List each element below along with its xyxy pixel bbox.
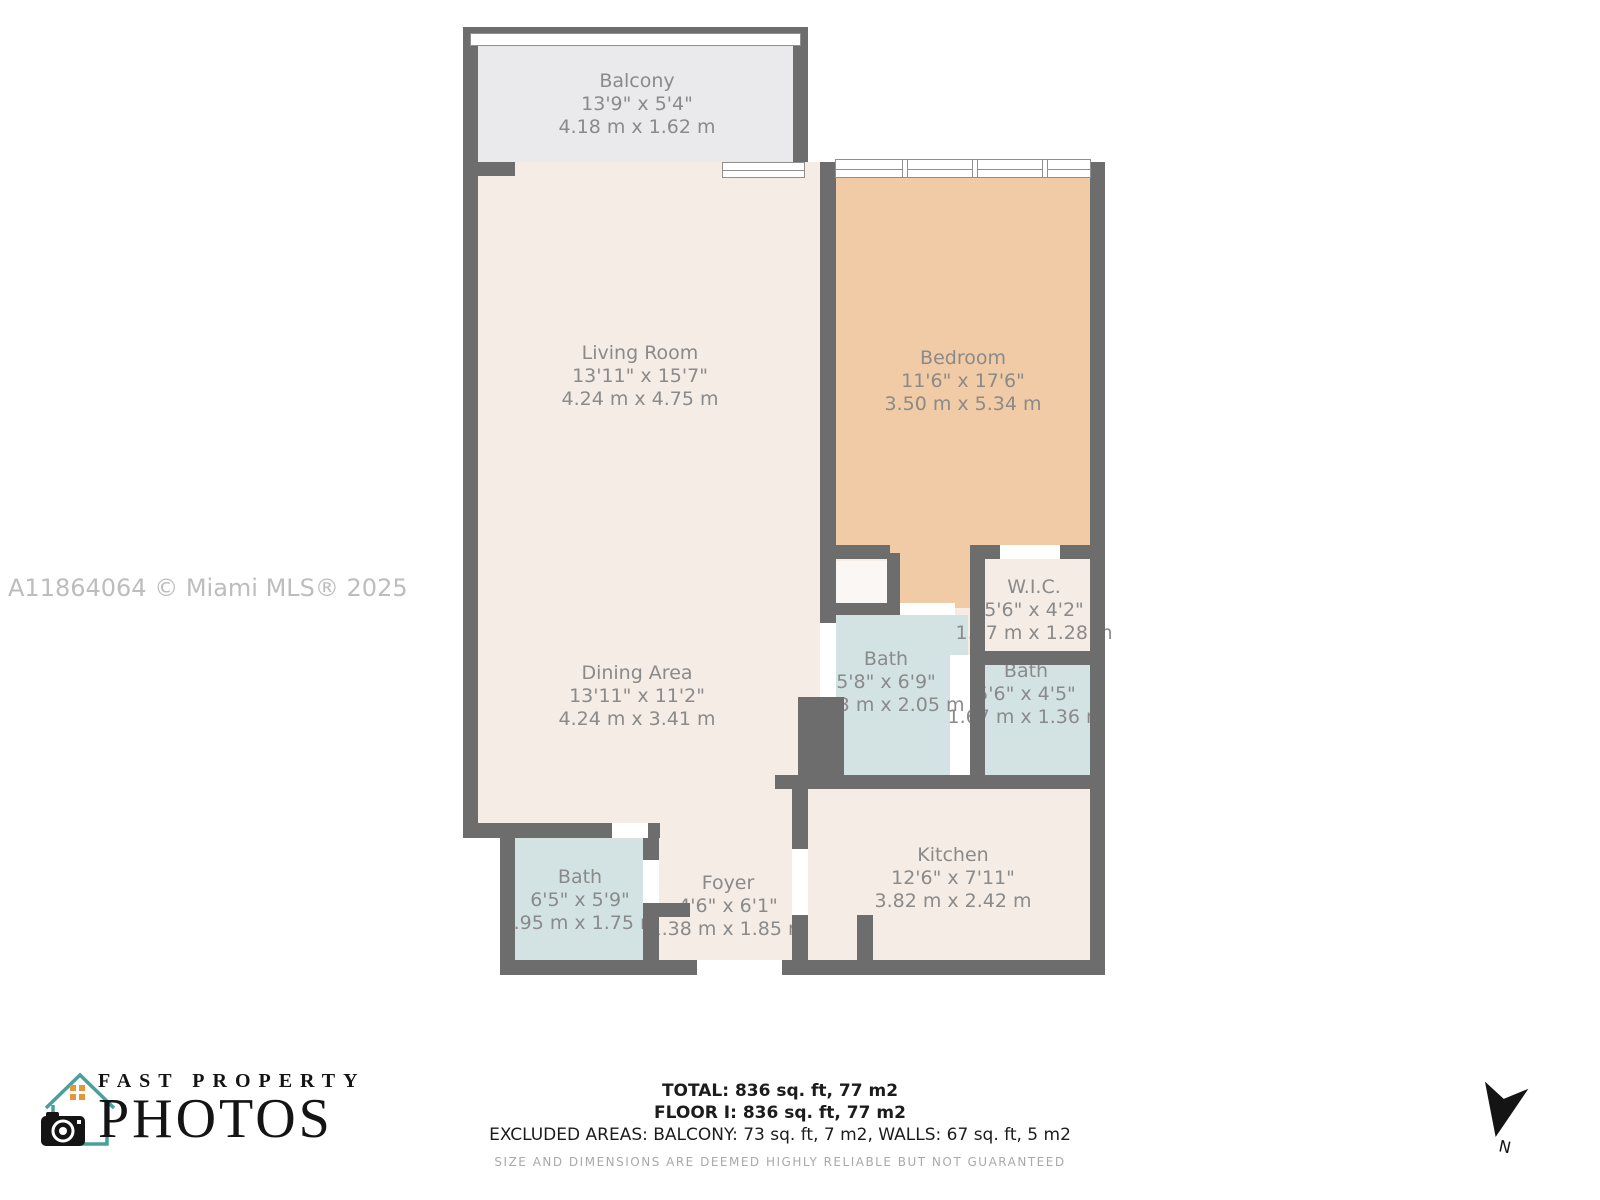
room-size-metric: 1.38 m x 1.85 m (598, 918, 858, 941)
north-arrow-icon: N (1475, 1082, 1535, 1156)
room-label-bath-right: Bath 5'6" x 4'5" 1.67 m x 1.36 m (896, 660, 1156, 729)
north-arrow: N (1475, 1082, 1535, 1160)
room-label-foyer: Foyer 4'6" x 6'1" 1.38 m x 1.85 m (598, 872, 858, 941)
wall (463, 27, 478, 162)
room-name: Living Room (510, 342, 770, 365)
bedroom-closet-floor (836, 561, 887, 605)
door-opening (612, 823, 648, 838)
room-name: Balcony (507, 70, 767, 93)
room-size-imperial: 13'9" x 5'4" (507, 93, 767, 116)
wall (1090, 162, 1105, 975)
room-size-metric: 4.18 m x 1.62 m (507, 116, 767, 139)
balcony-railing (470, 33, 801, 46)
disclaimer-text: SIZE AND DIMENSIONS ARE DEEMED HIGHLY RE… (380, 1155, 1180, 1169)
window (835, 159, 1091, 178)
exterior-mask (476, 838, 500, 978)
wall (500, 960, 1105, 975)
wall (820, 545, 890, 559)
wall (985, 651, 1090, 665)
wall (792, 789, 808, 849)
wall (500, 838, 515, 975)
mls-watermark: A11864064 © Miami MLS® 2025 (8, 574, 408, 602)
room-size-imperial: 5'6" x 4'2" (904, 599, 1164, 622)
room-size-metric: 4.24 m x 4.75 m (510, 388, 770, 411)
north-label: N (1497, 1136, 1513, 1156)
room-name: Kitchen (823, 844, 1083, 867)
wall (643, 838, 659, 860)
room-label-wic: W.I.C. 5'6" x 4'2" 1.67 m x 1.28 m (904, 576, 1164, 645)
room-size-imperial: 12'6" x 7'11" (823, 867, 1083, 890)
room-size-imperial: 4'6" x 6'1" (598, 895, 858, 918)
wall (798, 697, 844, 783)
room-size-metric: 4.24 m x 3.41 m (507, 708, 767, 731)
wall (793, 27, 808, 162)
total-area-text: TOTAL: 836 sq. ft, 77 m2 (380, 1080, 1180, 1102)
room-name: Dining Area (507, 662, 767, 685)
logo-text: FAST PROPERTY PHOTOS (98, 1070, 366, 1145)
room-size-imperial: 13'11" x 15'7" (510, 365, 770, 388)
wall (478, 162, 515, 176)
room-size-metric: 1.67 m x 1.36 m (896, 706, 1156, 729)
floor-plan-page: Balcony 13'9" x 5'4" 4.18 m x 1.62 m Liv… (0, 0, 1600, 1200)
room-name: W.I.C. (904, 576, 1164, 599)
door-opening (1000, 545, 1060, 559)
wall (970, 545, 985, 775)
room-label-dining-area: Dining Area 13'11" x 11'2" 4.24 m x 3.41… (507, 662, 767, 731)
floor-area-text: FLOOR I: 836 sq. ft, 77 m2 (380, 1102, 1180, 1124)
room-name: Foyer (598, 872, 858, 895)
entry-door-opening (697, 960, 782, 975)
room-size-imperial: 13'11" x 11'2" (507, 685, 767, 708)
room-size-metric: 1.67 m x 1.28 m (904, 622, 1164, 645)
room-label-bedroom: Bedroom 11'6" x 17'6" 3.50 m x 5.34 m (833, 347, 1093, 416)
wall (820, 603, 900, 615)
room-label-kitchen: Kitchen 12'6" x 7'11" 3.82 m x 2.42 m (823, 844, 1083, 913)
logo-line2: PHOTOS (98, 1093, 366, 1145)
window (722, 162, 805, 178)
room-size-imperial: 11'6" x 17'6" (833, 370, 1093, 393)
room-label-living-room: Living Room 13'11" x 15'7" 4.24 m x 4.75… (510, 342, 770, 411)
room-size-imperial: 5'6" x 4'5" (896, 683, 1156, 706)
room-name: Bedroom (833, 347, 1093, 370)
wall (775, 775, 1105, 789)
wall (887, 553, 900, 608)
area-summary: TOTAL: 836 sq. ft, 77 m2 FLOOR I: 836 sq… (380, 1080, 1180, 1169)
excluded-areas-text: EXCLUDED AREAS: BALCONY: 73 sq. ft, 7 m2… (380, 1124, 1180, 1146)
room-label-balcony: Balcony 13'9" x 5'4" 4.18 m x 1.62 m (507, 70, 767, 139)
room-size-metric: 3.50 m x 5.34 m (833, 393, 1093, 416)
wall (463, 162, 478, 838)
wall (643, 903, 690, 917)
room-size-metric: 3.82 m x 2.42 m (823, 890, 1083, 913)
fast-property-photos-logo: FAST PROPERTY PHOTOS (40, 1068, 350, 1158)
